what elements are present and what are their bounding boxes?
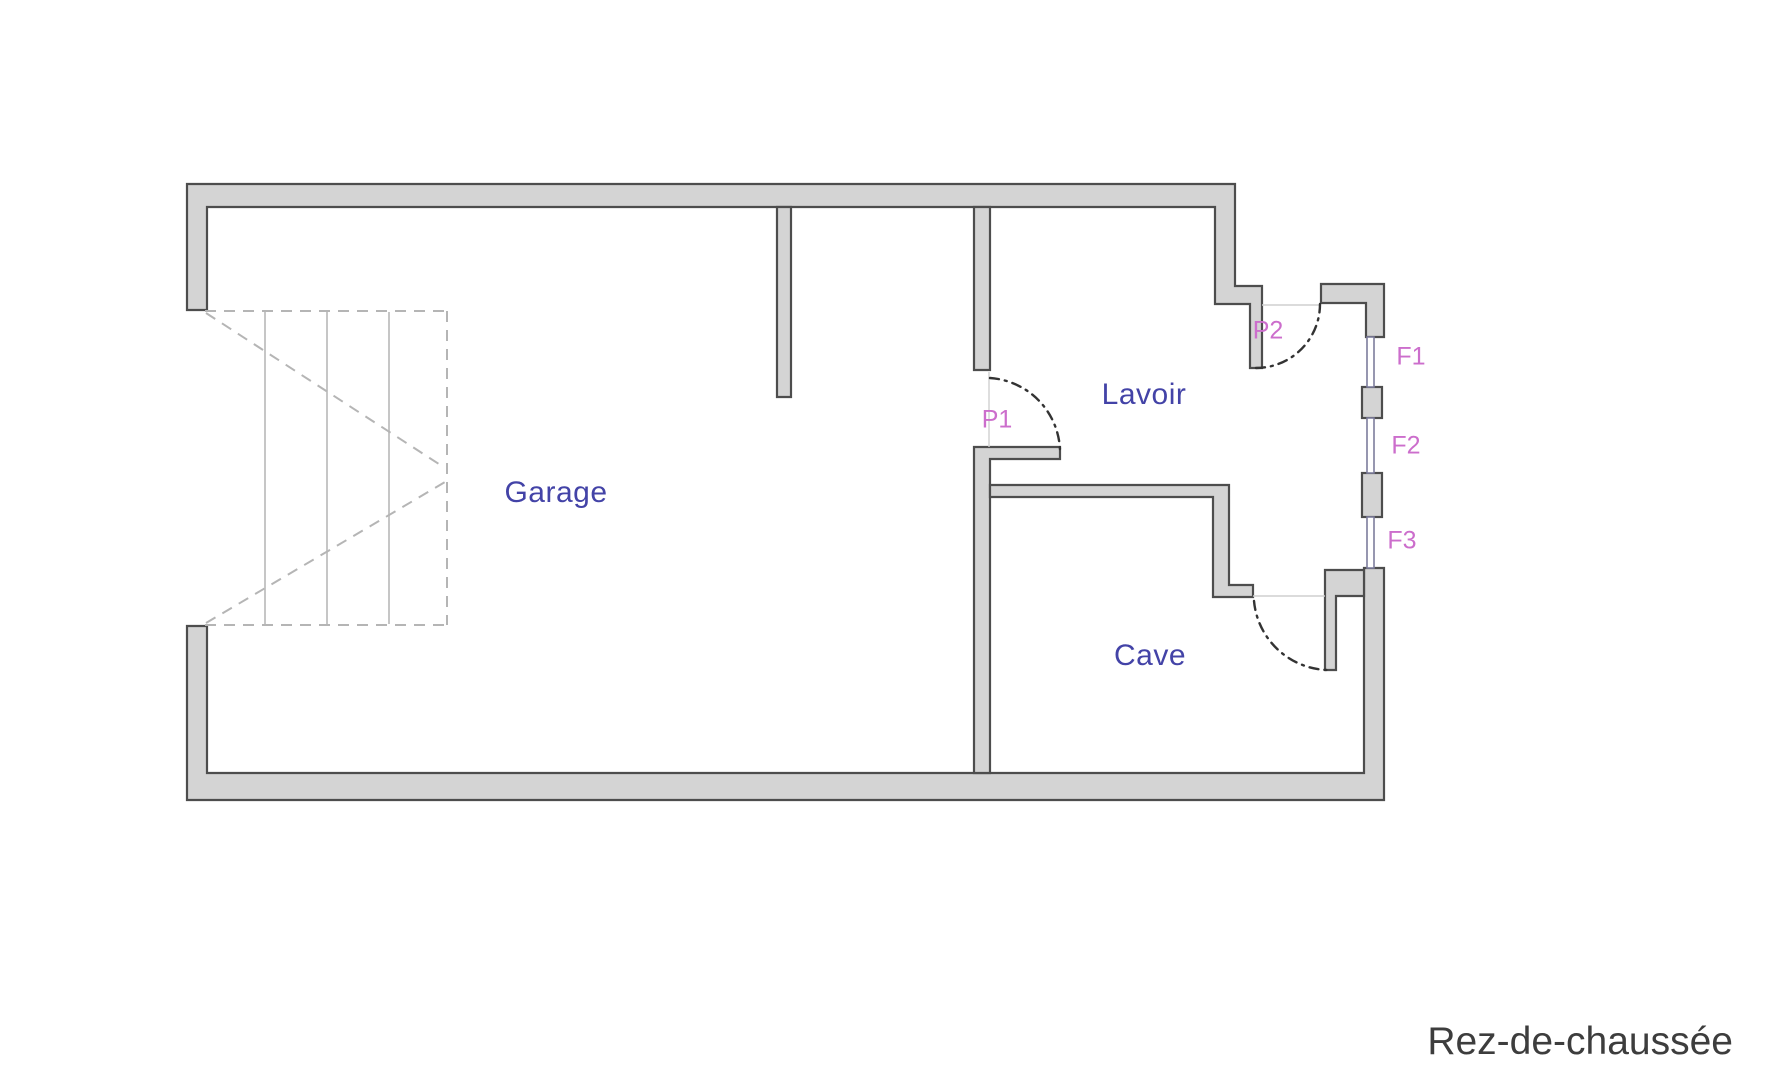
wall-partition-upper: [974, 207, 990, 370]
room-label-lavoir: Lavoir: [1102, 378, 1187, 412]
stair-direction-line: [206, 482, 445, 623]
stair-direction-line: [206, 313, 445, 468]
window-f3-icon: [1367, 517, 1374, 568]
wall-cave-top: [990, 485, 1253, 597]
stairs-symbol: [205, 311, 447, 625]
door-label-p2: P2: [1253, 317, 1284, 346]
window-f1-icon: [1367, 337, 1374, 387]
wall-stub-garage: [777, 207, 791, 397]
door-label-p1: P1: [982, 406, 1013, 435]
walls: [187, 184, 1384, 800]
wall-outer-bottom: [187, 568, 1384, 800]
wall-pier-f1-f2: [1362, 387, 1382, 418]
floor-plan-page: Garage Lavoir Cave P1 P2 F1 F2 F3 Rez-de…: [0, 0, 1767, 1080]
windows-glyphs: [1367, 337, 1374, 568]
window-label-f3: F3: [1387, 527, 1416, 556]
window-f2-icon: [1367, 418, 1374, 473]
wall-outer-top-left: [187, 184, 1262, 368]
floor-plan-drawing: [0, 0, 1767, 1080]
wall-cave-door-leaf: [1325, 570, 1364, 670]
wall-top-right-corner: [1321, 284, 1384, 337]
window-label-f1: F1: [1396, 343, 1425, 372]
wall-pier-f2-f3: [1362, 473, 1382, 517]
floor-title: Rez-de-chaussée: [1427, 1020, 1733, 1064]
room-label-cave: Cave: [1114, 639, 1186, 673]
room-label-garage: Garage: [504, 476, 607, 510]
door-cave-swing-arc: [1254, 601, 1330, 670]
window-label-f2: F2: [1391, 432, 1420, 461]
